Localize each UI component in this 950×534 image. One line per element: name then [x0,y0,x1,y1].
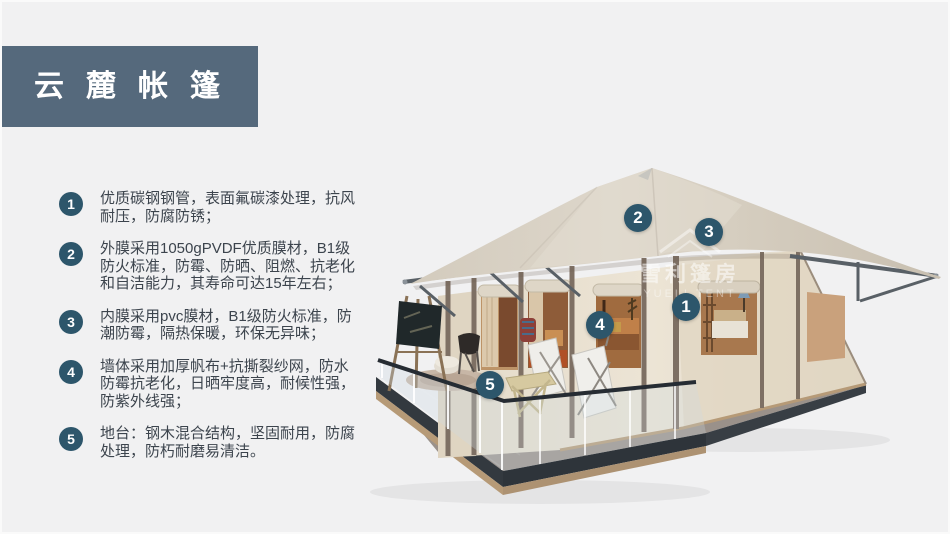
watermark-cn: 雪利篷房 [640,262,740,286]
deck-furniture [389,296,616,418]
feature-text-1: 优质碳钢钢管，表面氟碳漆处理，抗风耐压，防腐防锈； [100,190,363,225]
feature-bullet-3: 3 [59,310,83,334]
feature-list: 1 优质碳钢钢管，表面氟碳漆处理，抗风耐压，防腐防锈； 2 外膜采用1050gP… [59,190,369,460]
feature-bullet-1: 1 [59,192,83,216]
chair-dark [458,333,480,374]
table [506,372,556,417]
tent-marker-2: 2 [624,204,652,232]
chair-patterned [520,318,536,342]
chair-white-a [528,338,566,398]
wall-trims [448,251,798,456]
feature-item-1: 1 优质碳钢钢管，表面氟碳漆处理，抗风耐压，防腐防锈； [59,190,369,225]
feature-text-4: 墙体采用加厚帆布+抗撕裂纱网，防水防霉抗老化，日晒牢度高，耐候性强，防紫外线强； [100,358,363,411]
watermark: 雪利篷房 YUELI TENT [640,230,740,300]
easel [389,296,447,391]
feature-item-3: 3 内膜采用pvc膜材，B1级防火标准，防潮防霉，隔热保暖，环保无异味； [59,308,369,343]
feature-item-5: 5 地台：钢木混合结构，坚固耐用，防腐处理，防朽耐磨易清洁。 [59,425,369,460]
tent-walls [438,250,866,458]
title-banner: 云麓帐篷 [2,46,258,127]
feature-text-3: 内膜采用pvc膜材，B1级防火标准，防潮防霉，隔热保暖，环保无异味； [100,308,363,343]
feature-bullet-2: 2 [59,242,83,266]
awning-frame [403,256,939,316]
slide: 云麓帐篷 [0,0,950,534]
feature-item-2: 2 外膜采用1050gPVDF优质膜材，B1级防火标准，防霉、防晒、阻燃、抗老化… [59,240,369,293]
feature-text-2: 外膜采用1050gPVDF优质膜材，B1级防火标准，防霉、防晒、阻燃、抗老化和自… [100,240,363,293]
tent-marker-3: 3 [695,218,723,246]
chair-white-b [572,330,616,418]
feature-item-4: 4 墙体采用加厚帆布+抗撕裂纱网，防水防霉抗老化，日晒牢度高，耐候性强，防紫外线… [59,358,369,411]
eave-shadow [413,254,800,290]
window-rollers [478,280,760,297]
tent-marker-5: 5 [476,371,504,399]
tent-marker-1: 1 [672,293,700,321]
glass-railing [378,360,706,471]
ground-shadow [370,428,890,504]
deck [376,370,866,495]
page-title: 云麓帐篷 [34,72,242,102]
tent-windows [481,288,845,370]
feature-bullet-5: 5 [59,427,83,451]
tent-roof [410,168,941,284]
tent-marker-4: 4 [586,311,614,339]
feature-bullet-4: 4 [59,360,83,384]
feature-text-5: 地台：钢木混合结构，坚固耐用，防腐处理，防朽耐磨易清洁。 [100,425,363,460]
